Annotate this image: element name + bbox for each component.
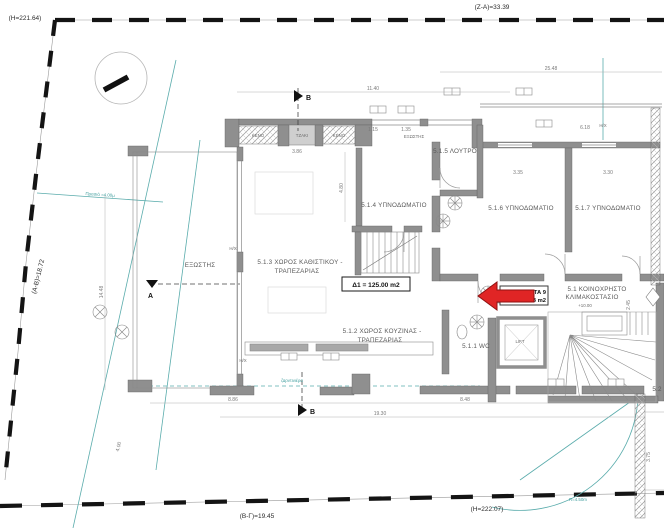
- dim-8-48: 8.48: [460, 397, 470, 403]
- dim-2-45: 2.45: [626, 300, 632, 310]
- boundary-label-bottom: (B-Γ)=19.45: [240, 513, 275, 520]
- fireplace-label: ΤΖΑΚΙ: [296, 133, 308, 138]
- boundary-label-top: (Z-A)=33.39: [475, 4, 510, 11]
- labels: (H=221.64) (Z-A)=33.39 (A-B)=18.72 (B-Γ)…: [9, 4, 662, 520]
- floor-plan-drawing: (H=221.64) (Z-A)=33.39 (A-B)=18.72 (B-Γ)…: [0, 0, 664, 528]
- dim-19-30: 19.30: [374, 411, 387, 417]
- doors: [384, 168, 640, 303]
- dim-3-75: 3.75: [646, 452, 652, 462]
- dim-6-18: 6.18: [580, 125, 590, 131]
- bedroom6-door-arc: [545, 254, 565, 274]
- stair-elevation-label: +10.00: [578, 303, 592, 308]
- room-label-kitchen-2: ΤΡΑΠΕΖΑΡΙΑΣ: [358, 337, 403, 344]
- room-label-living-2: ΤΡΑΠΕΖΑΡΙΑΣ: [275, 268, 320, 275]
- room-label-bedroom7: 5.1.7 ΥΠΝΟΔΩΜΑΤΙΟ: [575, 205, 641, 212]
- floor-plan: (H=221.64) (Z-A)=33.39 (A-B)=18.72 (B-Γ)…: [0, 0, 664, 528]
- balcony-label-top: ΕΞΩΣΤΗΣ: [404, 134, 425, 139]
- area-box: Δ1 = 125.00 m2: [342, 277, 410, 291]
- unit-52-label: 5.2: [652, 386, 662, 393]
- section-a-label: A: [148, 293, 153, 300]
- dim-4-80: 4.80: [339, 183, 345, 193]
- wc-toilet: [457, 325, 467, 339]
- bedroom7-door-arc: [622, 256, 640, 274]
- balcony-outline: [133, 152, 237, 388]
- room-label-bathroom: 5.1.5 ΛΟΥΤΡΟ: [433, 148, 477, 155]
- semi-open-label-left: Η/Χ: [229, 246, 236, 251]
- dim-3-35: 3.35: [513, 170, 523, 176]
- section-b-top-label: B: [306, 95, 311, 102]
- internal-staircase: [361, 232, 419, 273]
- room-label-bedroom6: 5.1.6 ΥΠΝΟΔΩΜΑΤΙΟ: [488, 205, 554, 212]
- dim-1-35: 1.35: [401, 127, 411, 133]
- area-box-label: Δ1 = 125.00 m2: [352, 282, 400, 289]
- dim-4-00: 4.00: [115, 441, 123, 452]
- room-label-bedroom4: 5.1.4 ΥΠΝΟΔΩΜΑΤΙΟ: [361, 202, 427, 209]
- room-label-living-1: 5.1.3 ΧΩΡΟΣ ΚΑΘΙΣΤΙΚΟΥ -: [257, 259, 342, 266]
- dimension-lines: [105, 72, 662, 417]
- section-b-bottom-marker: [298, 404, 307, 416]
- boundary-label-left: (A-B)=18.72: [31, 258, 46, 294]
- room-label-stair-2: ΚΛΙΜΑΚΟΣΤΑΣΙΟ: [565, 294, 618, 301]
- section-b-bottom-label: B: [310, 409, 315, 416]
- tree-symbol: [95, 52, 147, 104]
- boundary-label-top-left: (H=221.64): [9, 15, 42, 22]
- dim-3-86: 3.86: [292, 149, 302, 155]
- room-label-wc: 5.1.1 WC: [462, 343, 490, 350]
- dim-11-40: 11.40: [367, 86, 379, 92]
- section-a-marker: [146, 280, 158, 288]
- planter-label: ζαρντινιέρα: [281, 378, 303, 383]
- radius-label: R=4.50m: [569, 497, 587, 502]
- bathroom-door-arc: [440, 168, 460, 188]
- lift-label: LIFT: [515, 339, 524, 344]
- semi-open-label-bottom: Η/Χ: [239, 358, 246, 363]
- stair-landing: [582, 312, 627, 335]
- dim-14-48: 14.48: [99, 286, 105, 299]
- room-label-kitchen-1: 5.1.2 ΧΩΡΟΣ ΚΟΥΖΙΝΑΣ -: [343, 328, 422, 335]
- bedroom4-door-arc: [384, 232, 404, 252]
- semi-open-label-topright: Η/Χ: [599, 123, 606, 128]
- void-label-left: ΚΕΝΟ: [252, 133, 265, 138]
- dim-25-48: 25.48: [545, 66, 558, 72]
- balcony-label-left: ΕΞΩΣΤΗΣ: [185, 262, 216, 269]
- void-label-right: ΚΕΝΟ: [333, 133, 346, 138]
- room-label-stair-1: 5.1 ΚΟΙΝΟΧΡΗΣΤΟ: [567, 286, 626, 293]
- dim-8-86: 8.86: [228, 397, 238, 403]
- dim-1-15: 1.15: [368, 127, 378, 133]
- walls: [128, 108, 664, 518]
- boundary-label-bottom-right: (H=222.07): [471, 506, 504, 513]
- dim-3-30: 3.30: [603, 170, 613, 176]
